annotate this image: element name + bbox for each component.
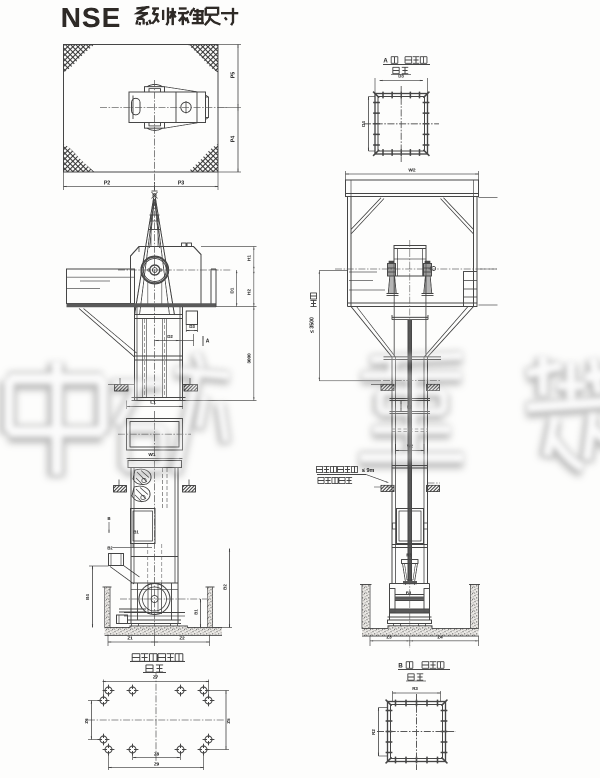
svg-text:W1: W1 bbox=[148, 452, 156, 458]
svg-text:≤ 3500: ≤ 3500 bbox=[310, 317, 316, 333]
svg-text:L1: L1 bbox=[150, 400, 156, 406]
svg-text:P2: P2 bbox=[104, 181, 110, 187]
svg-text:D1: D1 bbox=[230, 287, 235, 293]
svg-text:Z8: Z8 bbox=[154, 752, 160, 757]
svg-text:≤ 9m: ≤ 9m bbox=[362, 468, 374, 474]
svg-text:A: A bbox=[206, 339, 210, 345]
svg-text:A: A bbox=[383, 59, 388, 65]
svg-text:Z6: Z6 bbox=[84, 718, 89, 724]
svg-text:NSE: NSE bbox=[61, 2, 122, 33]
svg-text:D4: D4 bbox=[361, 121, 366, 127]
svg-text:Z9: Z9 bbox=[154, 762, 160, 767]
svg-text:D2: D2 bbox=[167, 334, 173, 339]
svg-text:B2: B2 bbox=[107, 546, 113, 551]
svg-text:B4: B4 bbox=[85, 594, 90, 600]
svg-text:Z2: Z2 bbox=[179, 636, 185, 641]
svg-text:H1: H1 bbox=[246, 255, 251, 261]
svg-text:W2: W2 bbox=[408, 168, 416, 174]
svg-text:3000: 3000 bbox=[247, 353, 252, 364]
svg-text:P5: P5 bbox=[231, 72, 237, 78]
svg-text:B: B bbox=[107, 516, 110, 521]
svg-text:B2: B2 bbox=[223, 584, 228, 590]
svg-text:B1: B1 bbox=[194, 609, 199, 615]
svg-text:H2: H2 bbox=[246, 289, 251, 295]
svg-text:Z1: Z1 bbox=[127, 636, 133, 641]
svg-text:R3: R3 bbox=[412, 686, 418, 691]
svg-text:R3: R3 bbox=[406, 553, 412, 558]
svg-text:Z7: Z7 bbox=[153, 675, 159, 680]
svg-text:Z4: Z4 bbox=[437, 634, 443, 639]
svg-text:R2: R2 bbox=[371, 729, 376, 735]
svg-text:B: B bbox=[398, 664, 403, 670]
svg-text:Z5: Z5 bbox=[226, 718, 231, 724]
svg-text:Z3: Z3 bbox=[386, 634, 392, 639]
svg-text:P3: P3 bbox=[178, 181, 184, 187]
svg-text:D3: D3 bbox=[189, 324, 195, 329]
svg-text:B1: B1 bbox=[133, 530, 139, 535]
svg-text:D3: D3 bbox=[398, 74, 404, 79]
svg-text:P4: P4 bbox=[231, 136, 237, 142]
